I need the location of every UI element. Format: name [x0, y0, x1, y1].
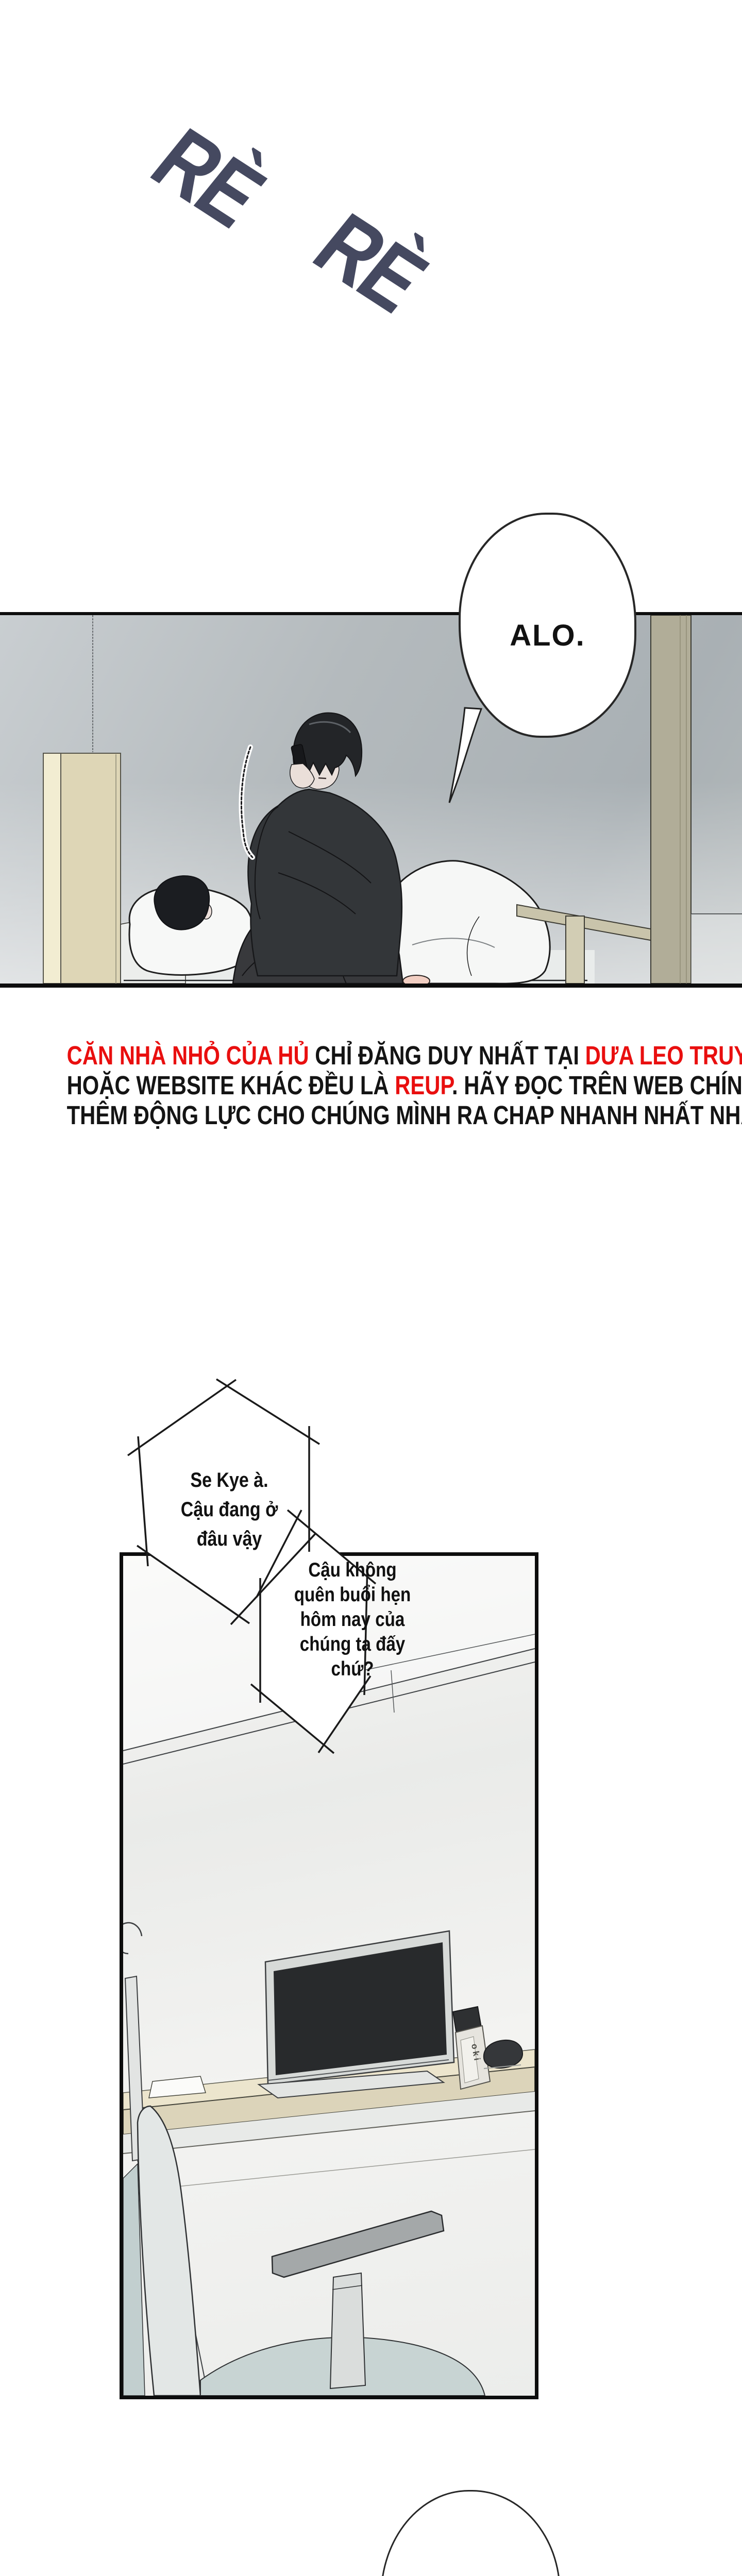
phone-bubble-2-line: Cậu không — [287, 1558, 418, 1583]
armrest-support — [330, 2273, 365, 2388]
sleeping-hair — [154, 876, 209, 930]
speech-text-alo: ALO. — [510, 618, 585, 653]
chair-armrest — [272, 2211, 444, 2277]
note-line-1: CĂN NHÀ NHỎ CỦA HỦ CHỈ ĐĂNG DUY NHẤT TẠI… — [67, 1041, 676, 1071]
phone-bubble-1: Se Kye à. Cậu đang ở đâu vậy — [164, 1466, 295, 1554]
sfx-re-2: RÈ — [299, 199, 440, 325]
lamp-head — [123, 1923, 142, 1954]
note-line-2: HOẶC WEBSITE KHÁC ĐỀU LÀ REUP. HÃY ĐỌC T… — [67, 1071, 676, 1100]
sfx-re-1: RÈ — [137, 114, 278, 240]
chair-back — [138, 2106, 200, 2396]
alo-bubble-tail — [443, 707, 495, 807]
comic-page: RÈ RÈ — [0, 0, 742, 2576]
bed-post — [651, 615, 691, 984]
speech-bubble-alo: ALO. — [459, 513, 636, 738]
laptop — [259, 1931, 454, 2098]
mouth — [318, 778, 326, 778]
note-line-3: THÊM ĐỘNG LỰC CHO CHÚNG MÌNH RA CHAP NHA… — [67, 1100, 676, 1130]
phone-bubble-1-line: đâu vậy — [164, 1524, 295, 1554]
office-chair — [123, 2106, 485, 2396]
headboard — [61, 753, 121, 984]
mouse — [484, 2040, 522, 2068]
phone-bubble-2-line: quên buổi hẹn — [287, 1583, 418, 1607]
speech-bubble-bottom: À...TÔI, — [380, 2490, 561, 2576]
phone-bubble-1-line: Se Kye à. — [164, 1466, 295, 1495]
phone-bubble-2: Cậu không quên buổi hẹn hôm nay của chún… — [287, 1558, 418, 1682]
phone-bubble-2-line: chứ? — [287, 1657, 418, 1682]
phone-bubble-2-line: hôm nay của — [287, 1607, 418, 1632]
phone-bubble-2-line: chúng ta đấy — [287, 1632, 418, 1657]
headboard-edge — [43, 753, 61, 984]
hand-on-bed — [403, 975, 430, 984]
translator-note: CĂN NHÀ NHỎ CỦA HỦ CHỈ ĐĂNG DUY NHẤT TẠI… — [0, 1041, 742, 1130]
phone-bubble-1-line: Cậu đang ở — [164, 1495, 295, 1524]
footboard-leg — [566, 916, 584, 984]
